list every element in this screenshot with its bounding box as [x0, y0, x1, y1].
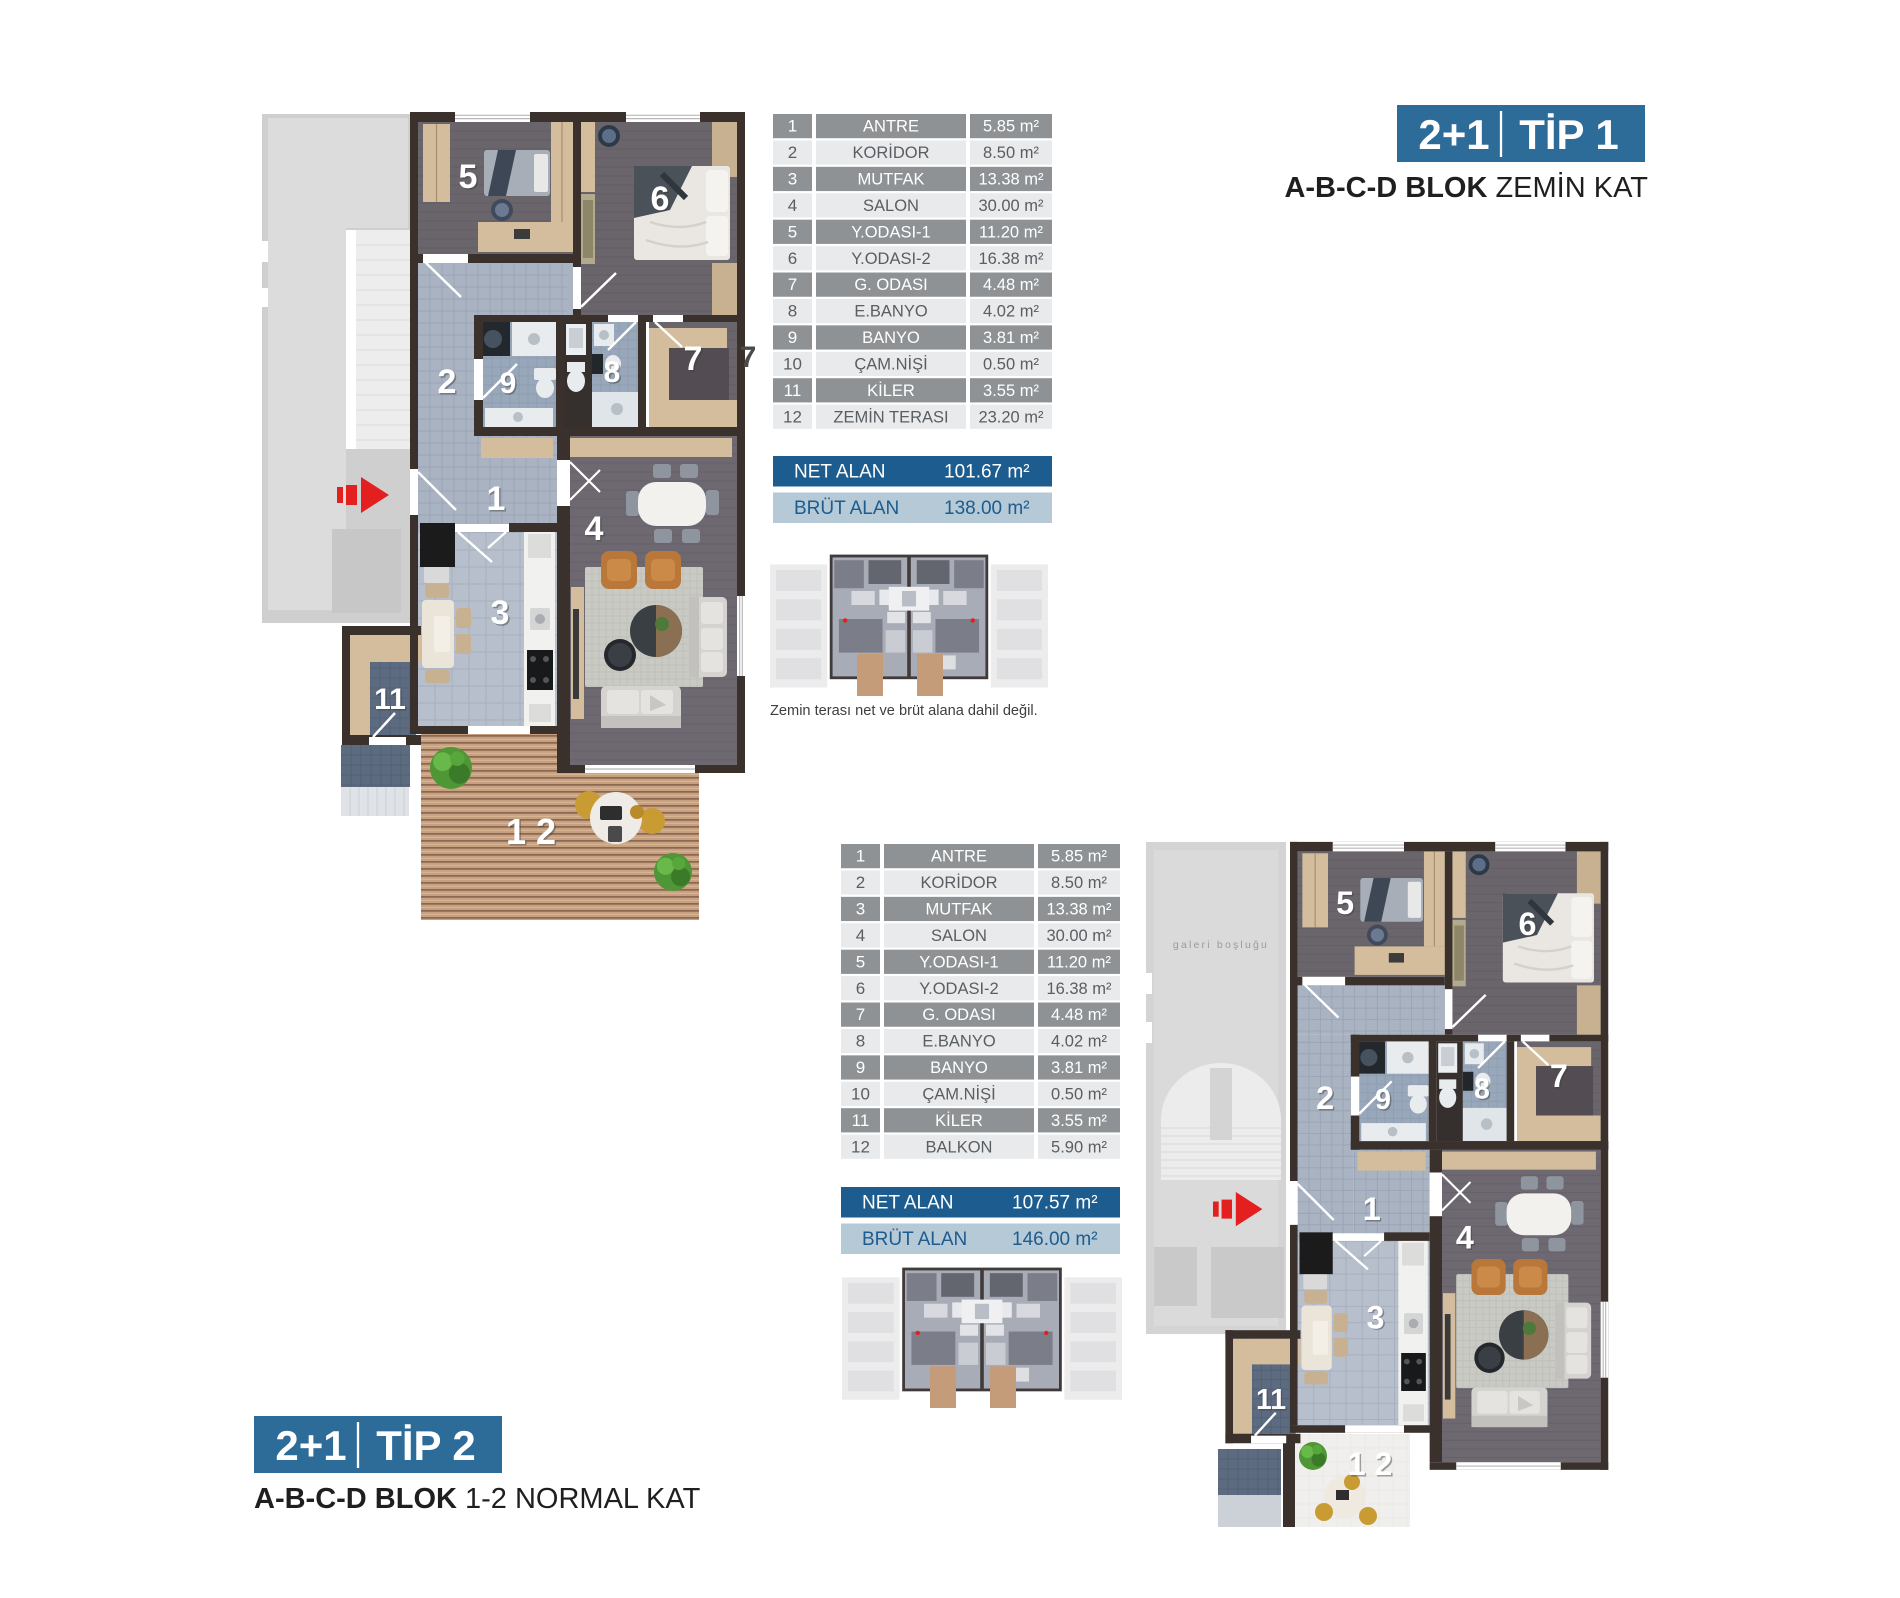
svg-text:galeri boşluğu: galeri boşluğu: [1173, 939, 1269, 951]
svg-text:2+1: 2+1: [1418, 111, 1489, 158]
svg-text:BANYO: BANYO: [930, 1059, 988, 1077]
svg-text:5: 5: [459, 158, 478, 196]
svg-text:2: 2: [856, 873, 865, 892]
svg-text:Y.ODASI-1: Y.ODASI-1: [851, 223, 930, 241]
svg-text:6: 6: [1519, 906, 1537, 942]
svg-text:KORİDOR: KORİDOR: [920, 873, 997, 892]
svg-text:11: 11: [852, 1111, 870, 1130]
svg-text:12: 12: [783, 407, 802, 426]
svg-text:3: 3: [856, 900, 865, 919]
svg-text:0.50 m²: 0.50 m²: [983, 356, 1039, 374]
svg-text:101.67 m²: 101.67 m²: [944, 462, 1030, 483]
svg-text:3.81 m²: 3.81 m²: [983, 329, 1039, 347]
svg-text:8: 8: [1474, 1073, 1490, 1105]
svg-text:1: 1: [487, 480, 506, 518]
svg-text:BALKON: BALKON: [926, 1138, 993, 1156]
svg-text:G. ODASI: G. ODASI: [854, 276, 927, 294]
svg-text:146.00 m²: 146.00 m²: [1012, 1229, 1098, 1250]
svg-text:ÇAM.NİŞİ: ÇAM.NİŞİ: [922, 1085, 995, 1104]
svg-text:2: 2: [788, 143, 797, 162]
svg-text:MUTFAK: MUTFAK: [858, 171, 925, 189]
svg-text:8: 8: [856, 1032, 865, 1051]
svg-text:9: 9: [500, 367, 517, 400]
svg-text:ZEMİN TERASI: ZEMİN TERASI: [833, 407, 948, 426]
svg-text:9: 9: [1375, 1084, 1391, 1116]
svg-text:8.50 m²: 8.50 m²: [983, 144, 1039, 162]
svg-text:3.81 m²: 3.81 m²: [1051, 1059, 1107, 1077]
svg-text:11: 11: [374, 683, 406, 716]
svg-text:4: 4: [1456, 1220, 1474, 1256]
svg-text:11: 11: [1256, 1384, 1286, 1416]
svg-text:SALON: SALON: [931, 927, 987, 945]
svg-text:8.50 m²: 8.50 m²: [1051, 874, 1107, 892]
svg-text:TİP 1: TİP 1: [1519, 111, 1619, 158]
svg-text:MUTFAK: MUTFAK: [926, 901, 993, 919]
svg-text:KORİDOR: KORİDOR: [852, 143, 929, 162]
svg-text:7: 7: [788, 275, 797, 294]
svg-text:E.BANYO: E.BANYO: [922, 1033, 996, 1051]
svg-text:3: 3: [1367, 1299, 1385, 1335]
svg-text:23.20 m²: 23.20 m²: [978, 408, 1044, 426]
svg-text:3.55 m²: 3.55 m²: [983, 382, 1039, 400]
svg-text:30.00 m²: 30.00 m²: [978, 197, 1044, 215]
svg-text:138.00 m²: 138.00 m²: [944, 498, 1030, 519]
svg-text:4: 4: [788, 196, 797, 215]
svg-text:A-B-C-D BLOK ZEMİN KAT: A-B-C-D BLOK ZEMİN KAT: [1284, 171, 1648, 204]
svg-text:5.85 m²: 5.85 m²: [1051, 848, 1107, 866]
svg-text:G. ODASI: G. ODASI: [922, 1006, 995, 1024]
svg-text:2+1: 2+1: [275, 1422, 346, 1469]
svg-text:Y.ODASI-2: Y.ODASI-2: [919, 980, 998, 998]
svg-text:10: 10: [783, 355, 802, 374]
svg-text:4.48 m²: 4.48 m²: [983, 276, 1039, 294]
svg-text:1 2: 1 2: [506, 811, 556, 852]
svg-text:7: 7: [856, 1005, 865, 1024]
svg-text:6: 6: [788, 249, 797, 268]
svg-text:5: 5: [788, 222, 797, 241]
svg-text:11.20 m²: 11.20 m²: [1047, 953, 1111, 971]
svg-text:1: 1: [1363, 1191, 1381, 1227]
svg-text:4: 4: [856, 926, 865, 945]
svg-text:3: 3: [491, 594, 510, 632]
svg-text:10: 10: [851, 1085, 870, 1104]
svg-text:ÇAM.NİŞİ: ÇAM.NİŞİ: [854, 355, 927, 374]
svg-text:8: 8: [788, 302, 797, 321]
svg-text:3.55 m²: 3.55 m²: [1051, 1112, 1107, 1130]
svg-text:Y.ODASI-2: Y.ODASI-2: [851, 250, 930, 268]
svg-text:NET ALAN: NET ALAN: [862, 1193, 954, 1214]
svg-text:6: 6: [651, 180, 670, 218]
svg-text:E.BANYO: E.BANYO: [854, 303, 928, 321]
svg-text:5: 5: [1336, 885, 1354, 921]
svg-text:5: 5: [856, 952, 865, 971]
svg-text:9: 9: [856, 1058, 865, 1077]
svg-text:Zemin terası net ve brüt alana: Zemin terası net ve brüt alana dahil değ…: [770, 703, 1038, 719]
svg-text:1: 1: [856, 847, 865, 866]
svg-text:4.02 m²: 4.02 m²: [983, 303, 1039, 321]
svg-text:1 2: 1 2: [1348, 1446, 1392, 1482]
svg-text:9: 9: [788, 328, 797, 347]
svg-text:6: 6: [856, 979, 865, 998]
svg-text:8: 8: [604, 356, 621, 389]
svg-text:Y.ODASI-1: Y.ODASI-1: [919, 953, 998, 971]
svg-text:5.90 m²: 5.90 m²: [1051, 1138, 1107, 1156]
svg-text:0.50 m²: 0.50 m²: [1051, 1086, 1107, 1104]
svg-text:1: 1: [788, 117, 797, 136]
svg-text:30.00 m²: 30.00 m²: [1046, 927, 1112, 945]
svg-text:A-B-C-D BLOK 1-2 NORMAL KAT: A-B-C-D BLOK 1-2 NORMAL KAT: [254, 1483, 701, 1515]
svg-text:BANYO: BANYO: [862, 329, 920, 347]
svg-text:ANTRE: ANTRE: [931, 848, 987, 866]
svg-text:NET ALAN: NET ALAN: [794, 462, 886, 483]
svg-text:107.57 m²: 107.57 m²: [1012, 1193, 1098, 1214]
svg-text:4.02 m²: 4.02 m²: [1051, 1033, 1107, 1051]
svg-text:5.85 m²: 5.85 m²: [983, 118, 1039, 136]
svg-text:7: 7: [1550, 1058, 1568, 1094]
svg-text:7: 7: [684, 340, 703, 378]
svg-text:4: 4: [585, 510, 604, 548]
svg-text:16.38 m²: 16.38 m²: [1046, 980, 1112, 998]
svg-text:11.20 m²: 11.20 m²: [979, 223, 1043, 241]
svg-text:16.38 m²: 16.38 m²: [978, 250, 1044, 268]
svg-text:BRÜT ALAN: BRÜT ALAN: [794, 498, 899, 519]
svg-text:TİP 2: TİP 2: [376, 1422, 476, 1469]
svg-text:13.38 m²: 13.38 m²: [1046, 901, 1112, 919]
svg-text:11: 11: [784, 381, 802, 400]
svg-text:3: 3: [788, 170, 797, 189]
svg-text:13.38 m²: 13.38 m²: [978, 171, 1044, 189]
svg-text:KİLER: KİLER: [867, 381, 915, 400]
svg-text:2: 2: [1316, 1080, 1334, 1116]
svg-text:ANTRE: ANTRE: [863, 118, 919, 136]
svg-text:KİLER: KİLER: [935, 1111, 983, 1130]
svg-text:2: 2: [438, 363, 457, 401]
svg-text:7: 7: [740, 341, 757, 374]
svg-text:12: 12: [851, 1137, 870, 1156]
svg-text:SALON: SALON: [863, 197, 919, 215]
svg-text:BRÜT ALAN: BRÜT ALAN: [862, 1229, 967, 1250]
svg-text:4.48 m²: 4.48 m²: [1051, 1006, 1107, 1024]
